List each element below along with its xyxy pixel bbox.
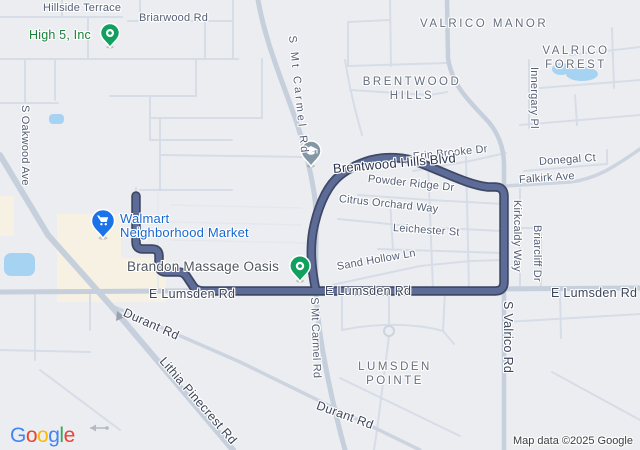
street-label-s-oakwood-ave: S Oakwood Ave xyxy=(19,105,31,186)
district-label-valrico-manor: VALRICO MANOR xyxy=(420,17,548,31)
street-label-briarcliff-dr: Briarcliff Dr xyxy=(531,225,543,282)
map-attribution: Map data ©2025 Google xyxy=(513,435,633,447)
high5-pin[interactable] xyxy=(101,24,120,49)
street-label-e-lumsden-rd-3: E Lumsden Rd xyxy=(551,286,637,300)
google-logo[interactable]: Google xyxy=(10,425,75,446)
poi-walmart-line2: Neighborhood Market xyxy=(120,226,249,240)
street-label-e-lumsden-rd-1: E Lumsden Rd xyxy=(149,287,235,301)
poi-label-walmart[interactable]: Walmart Neighborhood Market xyxy=(120,212,249,239)
map-canvas[interactable]: Hillside Terrace Briarwood Rd S Oakwood … xyxy=(0,0,640,450)
poi-walmart-line1: Walmart xyxy=(120,212,249,226)
street-label-kirkcaldy-way: Kirkcaldy Way xyxy=(511,200,523,272)
district-label-brentwood-hills: BRENTWOOD HILLS xyxy=(360,75,464,103)
brandon-massage-pin[interactable] xyxy=(290,256,310,283)
street-label-innergary-pl: Innergary Pl xyxy=(528,67,540,129)
street-label-s-valrico-rd: S Valrico Rd xyxy=(501,301,515,373)
street-label-hillside-terrace: Hillside Terrace xyxy=(43,2,121,14)
roundabout xyxy=(384,326,394,336)
street-label-e-lumsden-rd-2: E Lumsden Rd xyxy=(325,284,411,298)
district-label-lumsden-pointe: LUMSDEN POINTE xyxy=(343,360,447,388)
street-label-briarwood-rd: Briarwood Rd xyxy=(139,12,208,24)
poi-label-high5[interactable]: High 5, Inc xyxy=(29,28,91,42)
one-way-arrows xyxy=(90,311,125,432)
poi-label-brandon-massage[interactable]: Brandon Massage Oasis xyxy=(127,259,279,274)
